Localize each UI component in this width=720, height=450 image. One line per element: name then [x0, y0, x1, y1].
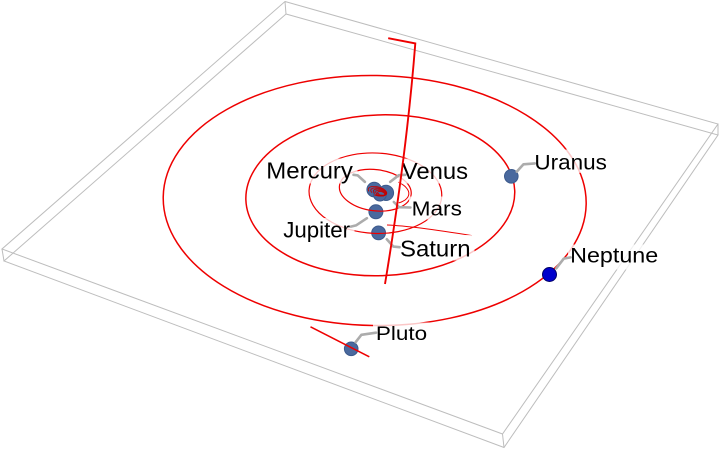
- svg-text:Saturn: Saturn: [400, 236, 471, 262]
- svg-text:Jupiter: Jupiter: [283, 217, 350, 242]
- svg-text:Mercury: Mercury: [266, 158, 353, 184]
- svg-text:Pluto: Pluto: [376, 323, 427, 345]
- svg-text:Uranus: Uranus: [534, 150, 607, 174]
- svg-text:Venus: Venus: [402, 158, 468, 184]
- svg-text:Neptune: Neptune: [570, 245, 658, 268]
- svg-text:Mars: Mars: [412, 198, 462, 221]
